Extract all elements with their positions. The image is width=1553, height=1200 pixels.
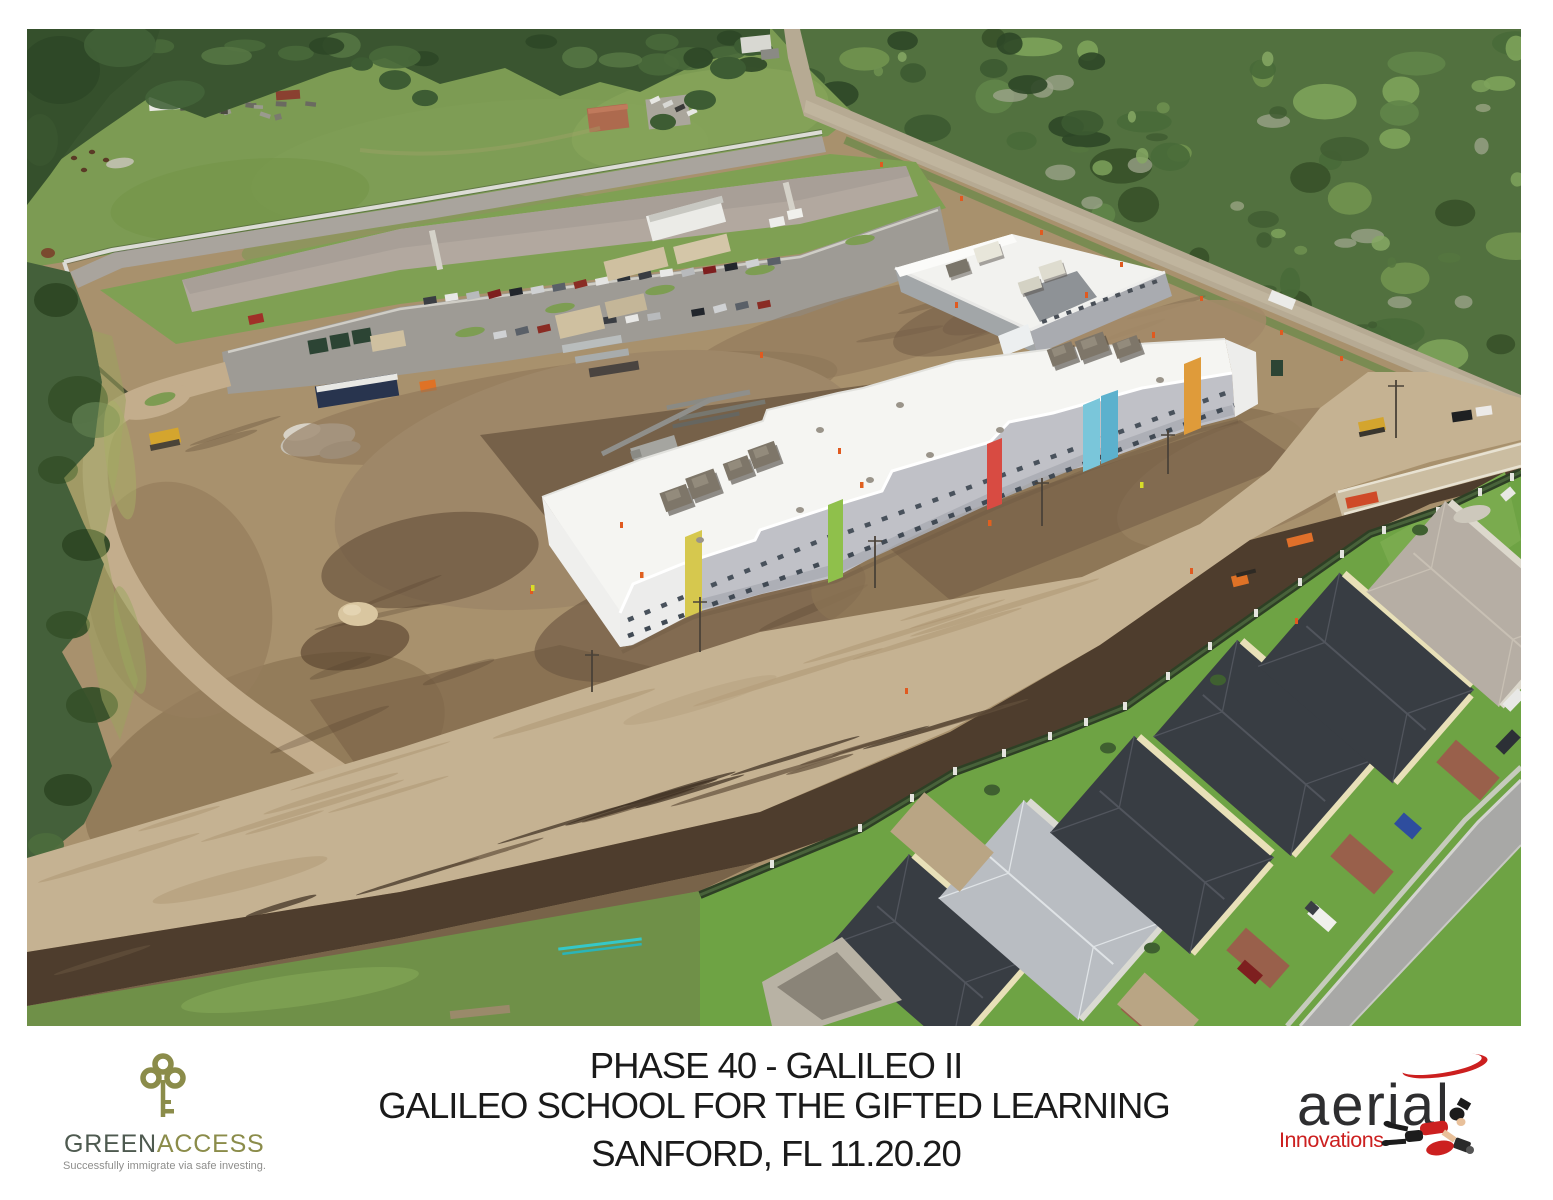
svg-text:Successfully immigrate via saf: Successfully immigrate via safe investin…	[63, 1160, 266, 1172]
svg-text:SANFORD, FL 11.20.20: SANFORD, FL 11.20.20	[591, 1133, 961, 1174]
svg-text:Innovations: Innovations	[1279, 1128, 1383, 1152]
svg-text:GALILEO SCHOOL FOR THE GIFTED: GALILEO SCHOOL FOR THE GIFTED LEARNING	[378, 1085, 1170, 1126]
svg-text:GREENACCESS: GREENACCESS	[64, 1130, 265, 1158]
svg-text:PHASE 40 - GALILEO II: PHASE 40 - GALILEO II	[590, 1045, 963, 1086]
